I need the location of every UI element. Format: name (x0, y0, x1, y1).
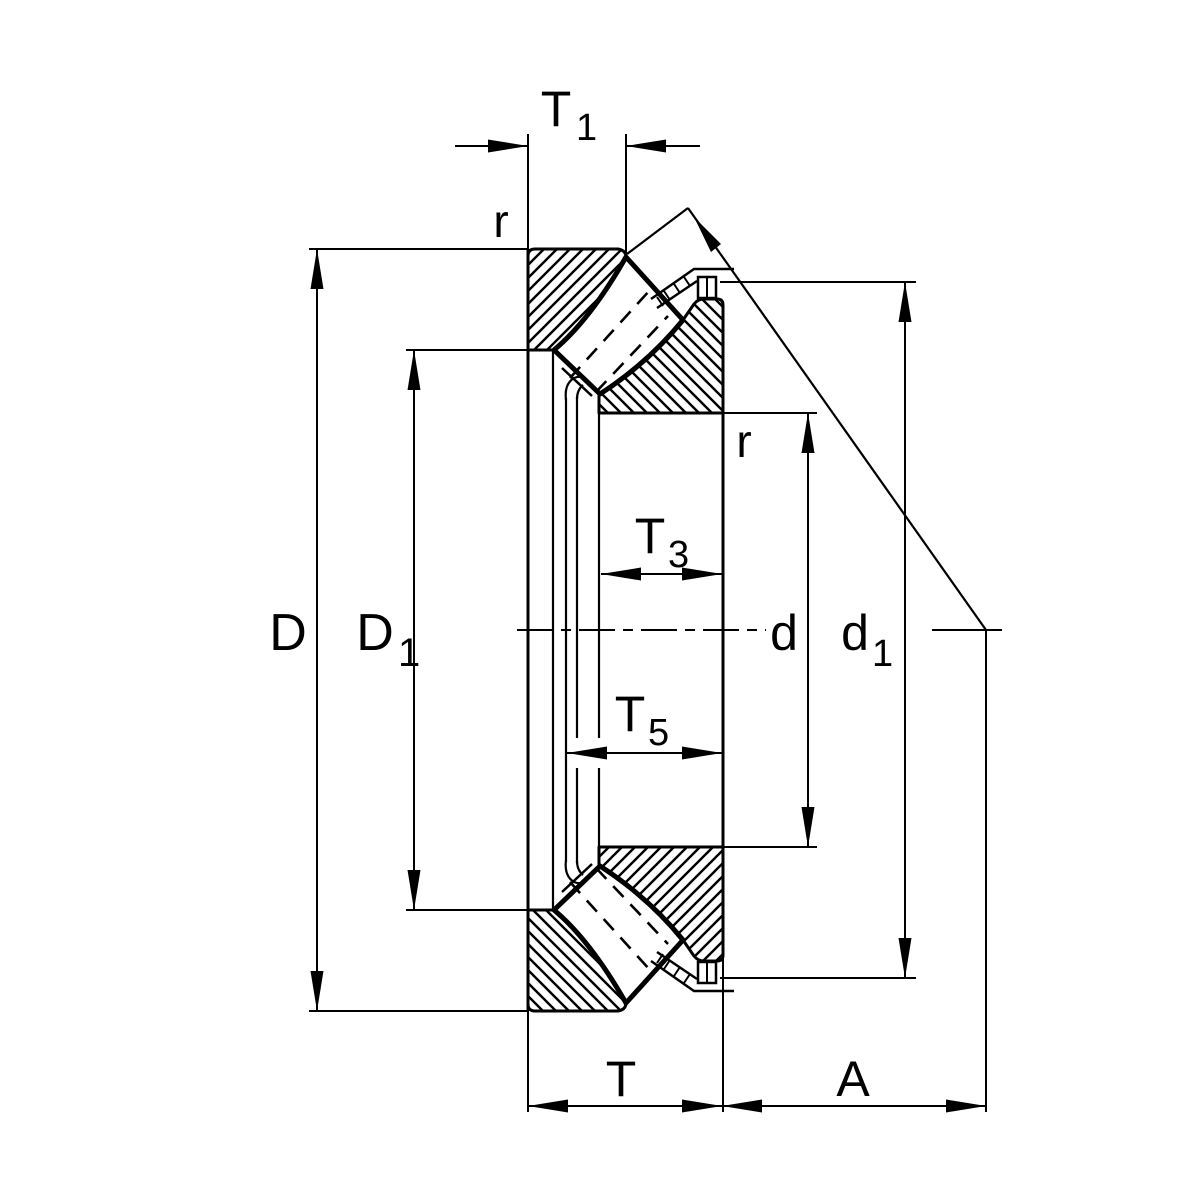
label-d1-sub: 1 (872, 633, 893, 675)
dim-T5 (567, 747, 722, 760)
dim-D (309, 249, 528, 1011)
label-r-top: r (493, 195, 508, 247)
label-T5: T (615, 686, 646, 742)
label-T3: T (635, 508, 666, 564)
drawing-canvas: T 1 r r D D 1 T 3 T 5 d d 1 T A (0, 0, 1200, 1200)
label-r-inner: r (736, 415, 751, 467)
label-T5-sub: 5 (648, 712, 669, 754)
label-d1: d (841, 605, 869, 661)
dim-T1 (455, 134, 700, 255)
label-D1: D (356, 604, 394, 662)
label-D: D (269, 604, 307, 662)
label-T1: T (541, 81, 572, 137)
label-T: T (606, 1051, 637, 1107)
label-d: d (770, 605, 798, 661)
label-A: A (836, 1051, 870, 1107)
label-T3-sub: 3 (668, 534, 689, 576)
bearing-diagram-svg: T 1 r r D D 1 T 3 T 5 d d 1 T A (0, 0, 1200, 1200)
pressure-angle-arrowhead (694, 217, 721, 252)
label-D1-sub: 1 (398, 631, 420, 675)
dim-A (722, 630, 986, 1113)
dim-T3 (601, 568, 722, 581)
label-T1-sub: 1 (576, 107, 597, 149)
